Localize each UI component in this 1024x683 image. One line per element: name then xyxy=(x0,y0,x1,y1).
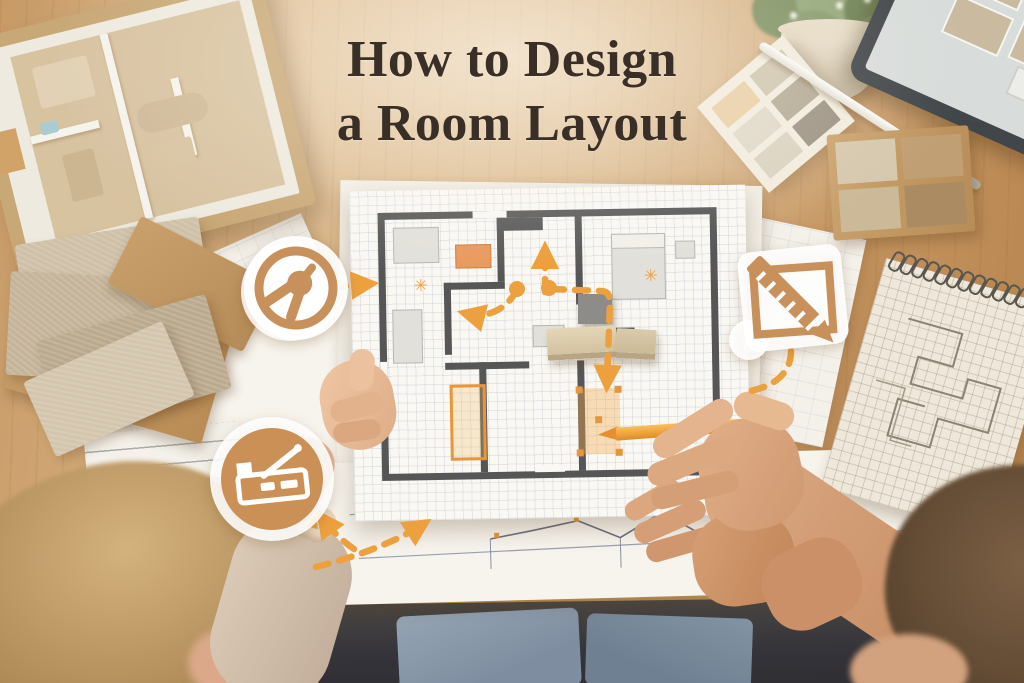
plan-rug xyxy=(393,227,440,264)
title-line-2: a Room Layout xyxy=(0,92,1024,156)
title-line-1: How to Design xyxy=(0,28,1024,92)
plan-table xyxy=(675,240,695,258)
wood-sample xyxy=(904,182,967,228)
material-block-on-plan xyxy=(546,325,618,361)
plan-orange-sofa xyxy=(455,244,491,269)
jeans-leg xyxy=(585,613,753,683)
model-block-on-plan xyxy=(578,294,612,324)
wood-sample xyxy=(838,186,901,232)
plan-bed xyxy=(392,309,423,364)
plan-highlight-room xyxy=(578,388,621,455)
material-block-on-plan xyxy=(615,328,657,360)
plan-light-symbol: ✳ xyxy=(414,277,429,294)
jeans-leg xyxy=(396,607,582,683)
plan-highlight-room xyxy=(450,384,487,461)
page-title: How to Design a Room Layout xyxy=(0,28,1024,156)
plan-pillow xyxy=(611,233,665,249)
plan-light-symbol: ✳ xyxy=(644,267,659,284)
photo-scene: ✳ ✳ xyxy=(0,0,1024,683)
